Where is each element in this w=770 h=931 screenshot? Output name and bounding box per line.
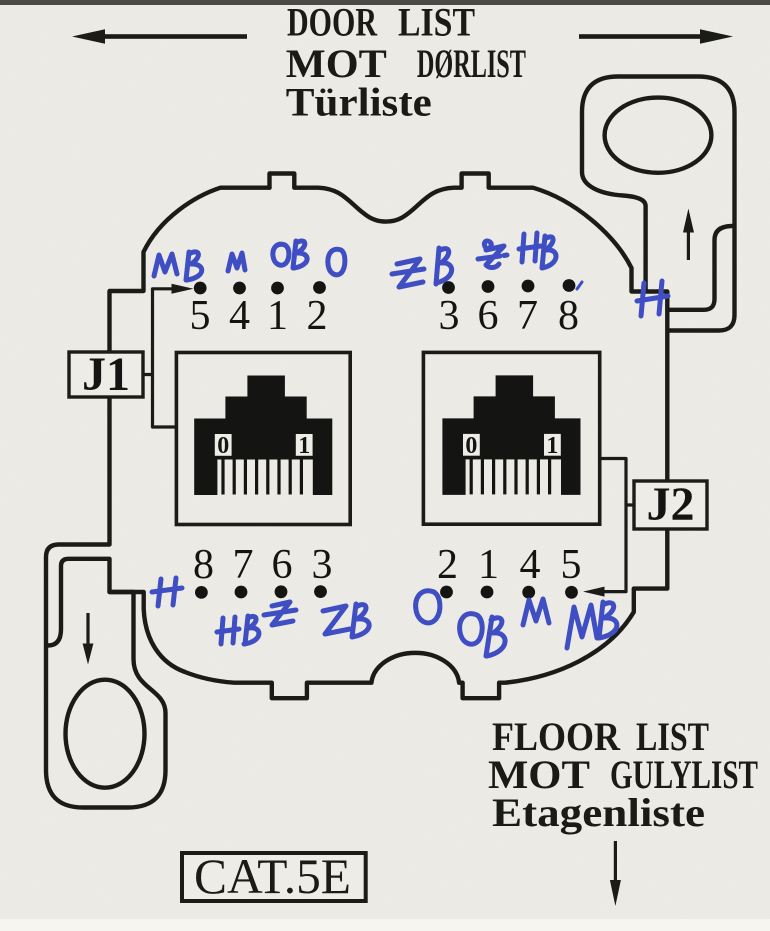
svg-text:6: 6: [272, 542, 293, 588]
svg-text:7: 7: [517, 293, 538, 339]
svg-text:LIST: LIST: [398, 0, 475, 45]
svg-text:1: 1: [478, 542, 499, 588]
svg-text:Türliste: Türliste: [286, 80, 432, 125]
svg-text:2: 2: [437, 542, 458, 588]
svg-text:Etagenliste: Etagenliste: [492, 790, 705, 835]
svg-text:8: 8: [558, 293, 579, 339]
svg-text:DØRLIST: DØRLIST: [417, 41, 526, 86]
svg-text:CAT.5E: CAT.5E: [194, 848, 351, 904]
svg-text:2: 2: [307, 293, 328, 339]
svg-text:5: 5: [190, 293, 211, 339]
svg-text:J2: J2: [647, 478, 695, 531]
svg-text:3: 3: [312, 542, 333, 588]
svg-text:8: 8: [193, 542, 214, 588]
svg-text:DOOR: DOOR: [287, 0, 378, 45]
svg-text:7: 7: [233, 542, 254, 588]
svg-text:6: 6: [478, 293, 499, 339]
svg-text:1: 1: [267, 293, 288, 339]
svg-text:J1: J1: [82, 348, 130, 401]
svg-text:4: 4: [520, 542, 541, 588]
svg-text:4: 4: [229, 293, 250, 339]
svg-text:5: 5: [561, 542, 582, 588]
svg-text:3: 3: [439, 293, 460, 339]
